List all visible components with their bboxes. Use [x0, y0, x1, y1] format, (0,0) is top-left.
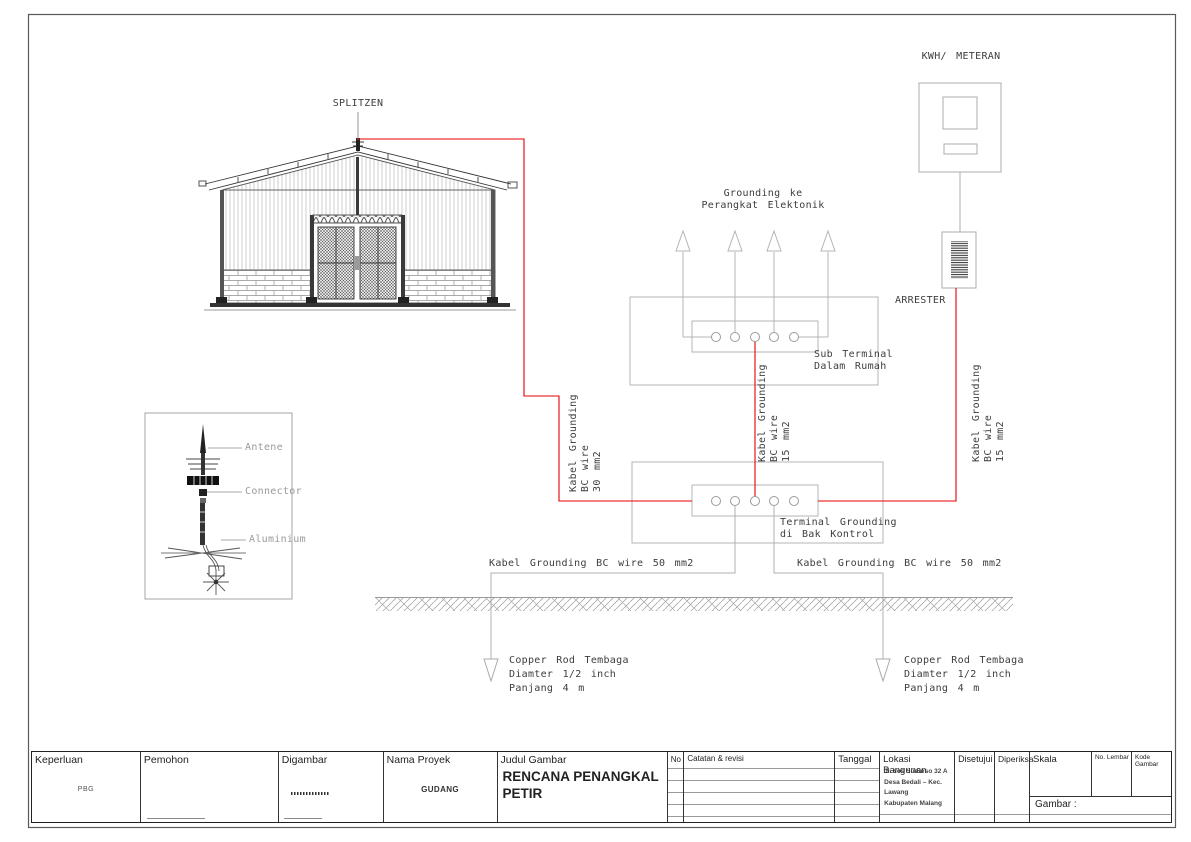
title-block-cell-nama-proyek: Nama Proyek GUDANG	[384, 752, 498, 822]
title-block-cell-catatan: Catatan & revisi	[684, 752, 835, 822]
antene-label: Antene	[245, 442, 283, 454]
cable-30mm2-label: Kabel Grounding BC wire 30 mm2	[568, 394, 604, 492]
disetujui-header: Disetujui	[958, 754, 993, 764]
no-header: No	[668, 755, 683, 764]
no-lembar-cell: No. Lembar	[1092, 752, 1132, 796]
digambar-signature-line	[284, 818, 322, 819]
no-lembar-header: No. Lembar	[1095, 754, 1129, 761]
title-block-cell-digambar: Digambar	[279, 752, 384, 822]
kode-gambar-cell: Kode Gambar	[1132, 752, 1171, 796]
copper-rod-right-label: Copper Rod Tembaga Diamter 1/2 inch Panj…	[904, 654, 1024, 696]
grounding-network	[484, 231, 890, 681]
diperiksa-header: Diperiksa	[998, 754, 1033, 764]
title-block-cell-diperiksa: Diperiksa	[995, 752, 1030, 822]
lightning-rod-detail	[145, 413, 292, 599]
title-block-cell-skala-group: Skala No. Lembar Kode Gambar Gambar :	[1030, 752, 1171, 822]
connector-label: Connector	[245, 486, 302, 498]
pemohon-signature-line	[147, 818, 205, 819]
lokasi-value: Jl. Yos Sudarso 32 A Desa Bedali – Kec. …	[884, 767, 947, 809]
aluminium-label: Aluminium	[249, 534, 306, 546]
title-block-cell-disetujui: Disetujui	[955, 752, 995, 822]
copper-rod-right-symbol	[876, 659, 890, 681]
empty-bottom-strip	[1030, 814, 1171, 822]
digambar-signature-scribble	[291, 792, 329, 795]
ground-hatch	[375, 598, 1013, 612]
terminal-grounding-label: Terminal Grounding di Bak Kontrol	[780, 517, 897, 541]
skala-header: Skala	[1033, 754, 1057, 765]
title-block-cell-tanggal: Tanggal	[835, 752, 880, 822]
copper-rod-left-symbol	[484, 659, 498, 681]
title-block-cell-no: No	[668, 752, 684, 822]
skala-cell: Skala	[1030, 752, 1092, 796]
nama-proyek-header: Nama Proyek	[387, 754, 451, 766]
title-block-cell-pemohon: Pemohon	[141, 752, 279, 822]
title-block: Keperluan PBG Pemohon Digambar Nama Proy…	[31, 751, 1172, 823]
pemohon-header: Pemohon	[144, 754, 189, 766]
digambar-header: Digambar	[282, 754, 328, 766]
judul-gambar-value: RENCANA PENANGKAL PETIR	[503, 768, 663, 802]
kode-gambar-header: Kode Gambar	[1135, 754, 1171, 768]
drawing-sheet: SPLITZEN KWH/ METERAN ARRESTER Grounding…	[0, 0, 1191, 842]
title-block-cell-keperluan: Keperluan PBG	[32, 752, 141, 822]
cable-15mm2-mid-label: Kabel Grounding BC wire 15 mm2	[757, 364, 793, 462]
tanggal-header: Tanggal	[838, 754, 871, 765]
judul-gambar-header: Judul Gambar	[501, 754, 567, 766]
copper-rod-left-label: Copper Rod Tembaga Diamter 1/2 inch Panj…	[509, 654, 629, 696]
keperluan-header: Keperluan	[35, 754, 83, 766]
arrester-symbol	[942, 232, 976, 288]
cable-15mm2-right-label: Kabel Grounding BC wire 15 mm2	[971, 364, 1007, 462]
title-block-cell-judul-gambar: Judul Gambar RENCANA PENANGKAL PETIR	[498, 752, 669, 822]
kwh-meter	[919, 83, 1001, 232]
gambar-row: Gambar :	[1030, 796, 1171, 814]
nama-proyek-value: GUDANG	[384, 785, 497, 794]
cable-50mm2-right-label: Kabel Grounding BC wire 50 mm2	[797, 558, 1002, 570]
title-block-cell-lokasi: Lokasi Bangunan Jl. Yos Sudarso 32 A Des…	[880, 752, 955, 822]
building-elevation	[199, 138, 517, 310]
catatan-header: Catatan & revisi	[687, 754, 743, 763]
sub-terminal-label: Sub Terminal Dalam Rumah	[814, 349, 893, 373]
splitzen-label: SPLITZEN	[318, 98, 398, 110]
keperluan-value: PBG	[32, 786, 140, 793]
cable-arrester-to-terminal	[818, 288, 956, 501]
cable-50mm2-left-label: Kabel Grounding BC wire 50 mm2	[489, 558, 694, 570]
arrester-label: ARRESTER	[895, 295, 946, 307]
grounding-ke-label: Grounding ke Perangkat Elektonik	[688, 188, 838, 212]
kwh-meteran-label: KWH/ METERAN	[905, 51, 1017, 63]
